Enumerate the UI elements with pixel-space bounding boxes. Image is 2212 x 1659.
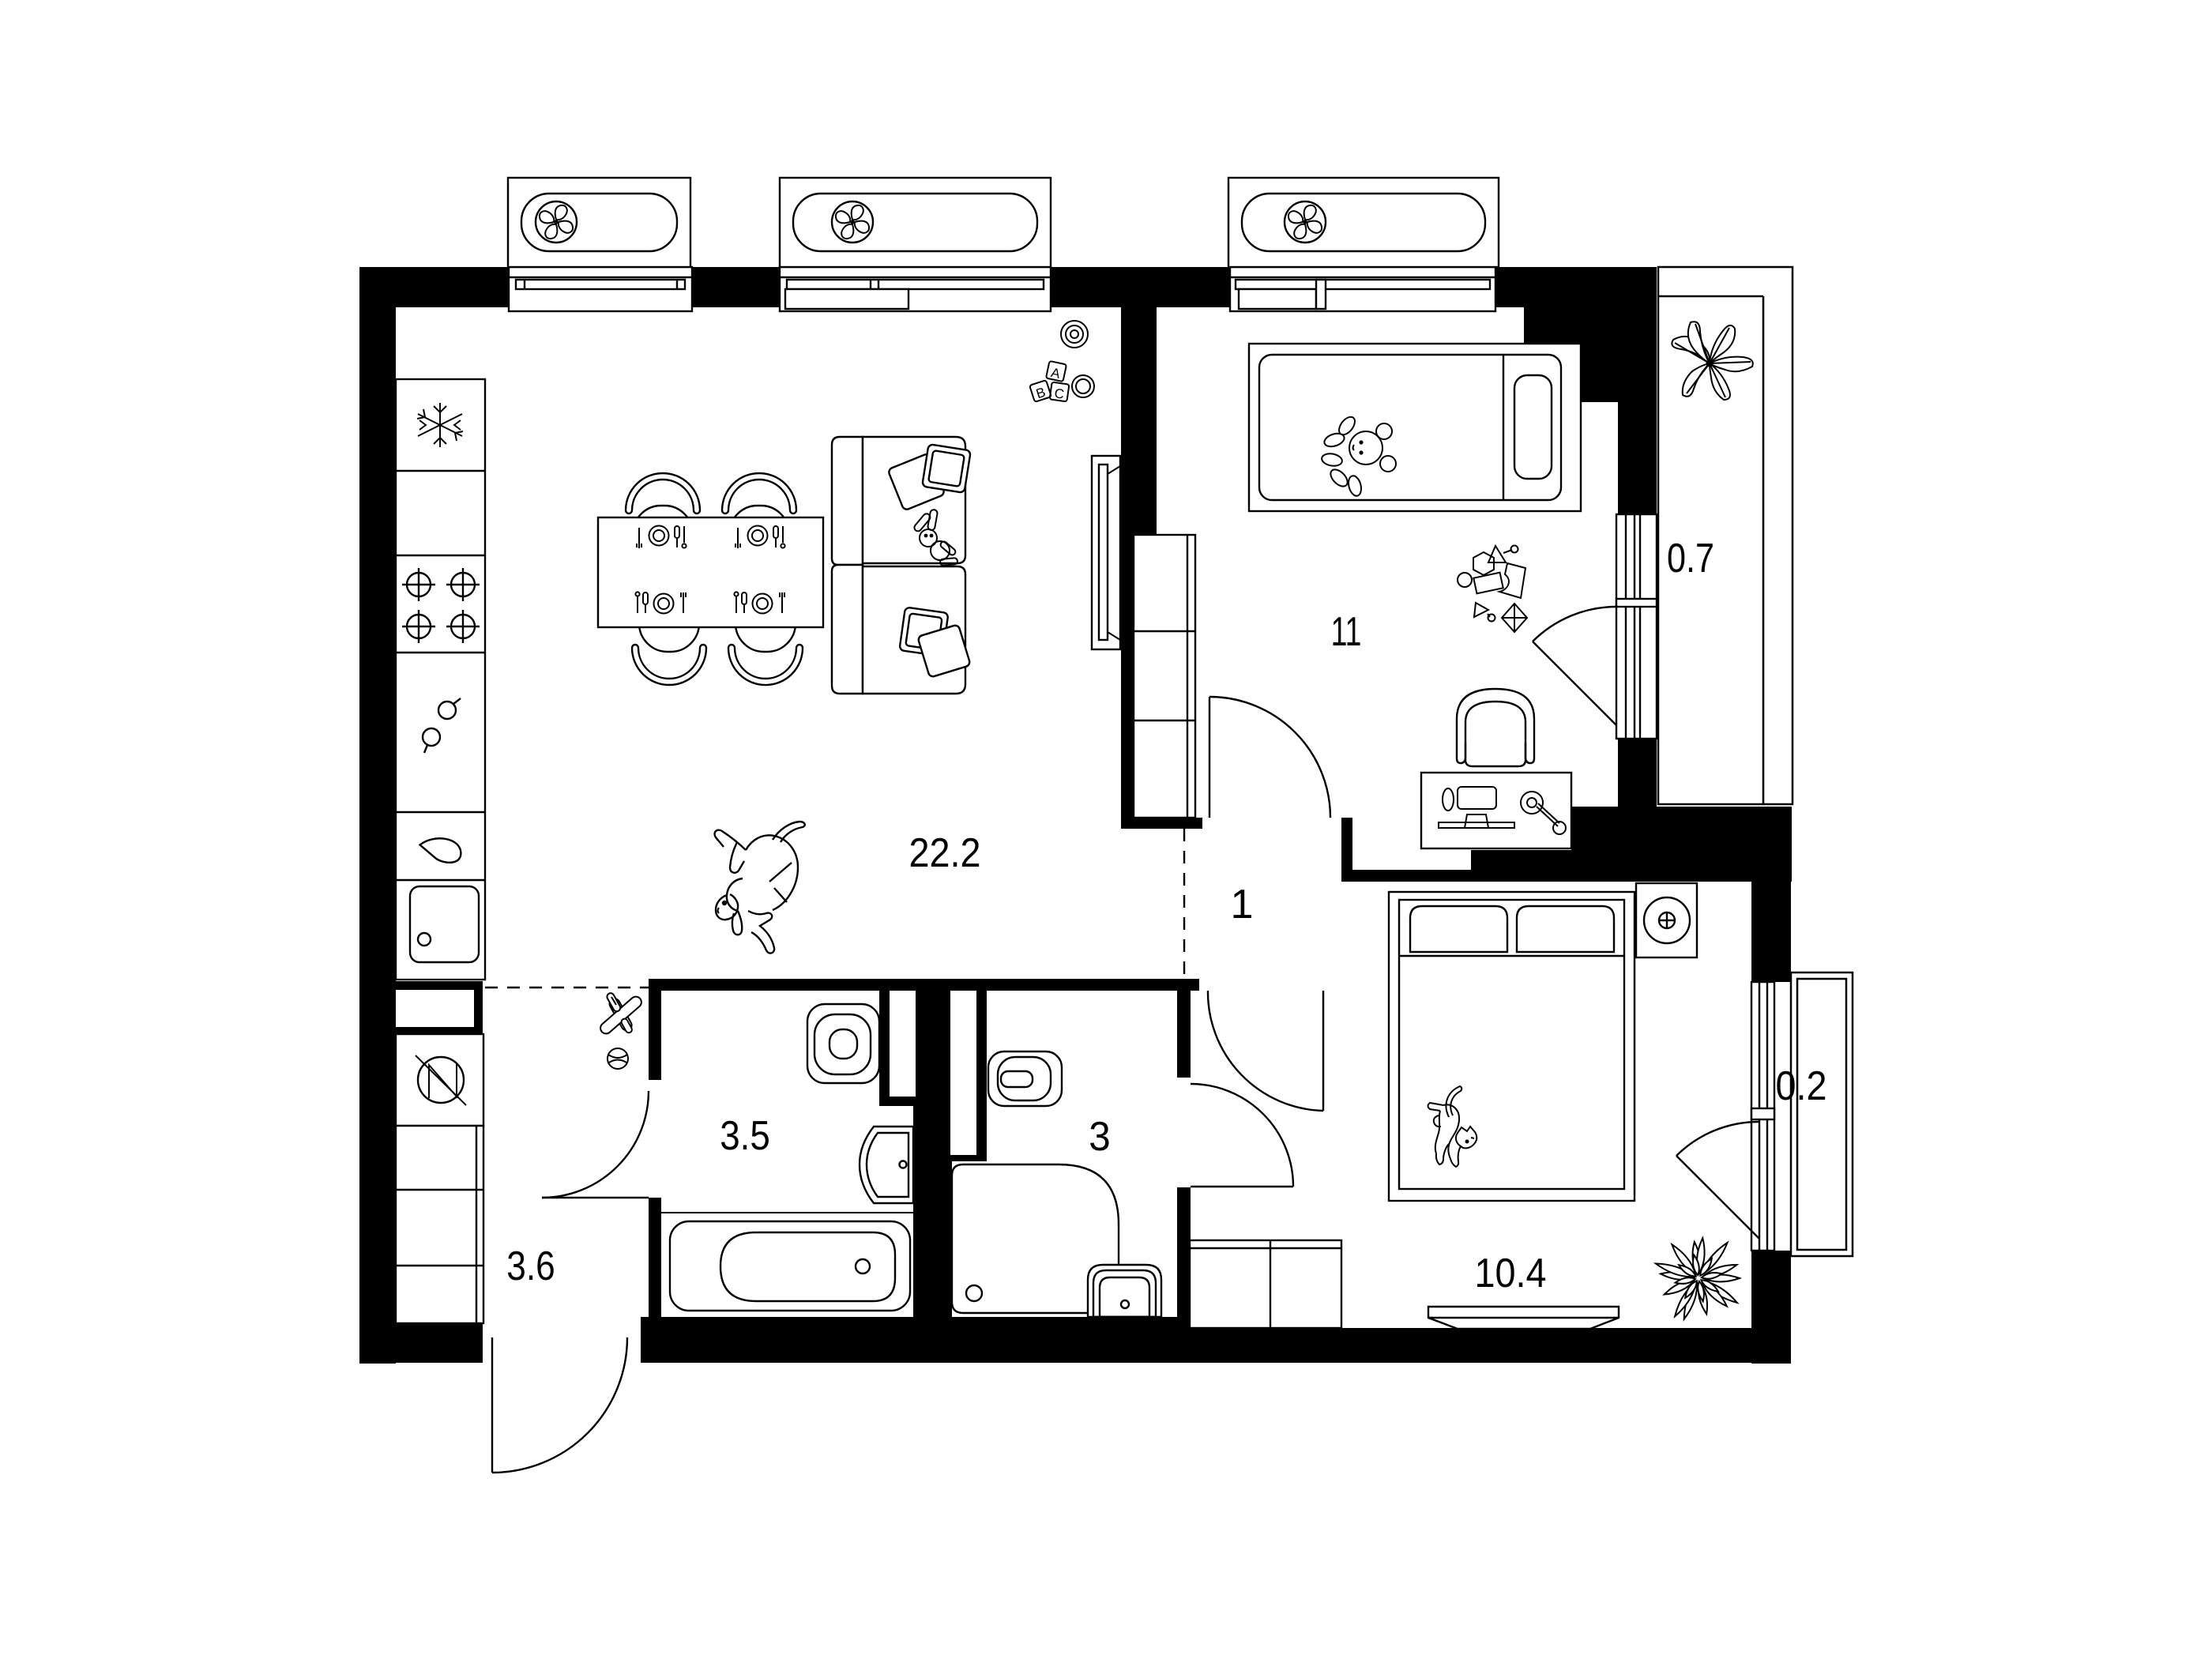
svg-text:3.5: 3.5 bbox=[720, 1113, 770, 1158]
svg-text:1: 1 bbox=[1231, 882, 1254, 927]
svg-text:0.7: 0.7 bbox=[1667, 536, 1714, 581]
svg-text:10.4: 10.4 bbox=[1474, 1251, 1546, 1296]
svg-text:3.6: 3.6 bbox=[506, 1243, 555, 1289]
svg-text:22.2: 22.2 bbox=[908, 830, 980, 876]
svg-text:3: 3 bbox=[1089, 1113, 1110, 1159]
svg-text:11: 11 bbox=[1331, 608, 1362, 655]
svg-text:C: C bbox=[1053, 386, 1065, 402]
svg-text:0.2: 0.2 bbox=[1775, 1063, 1826, 1109]
